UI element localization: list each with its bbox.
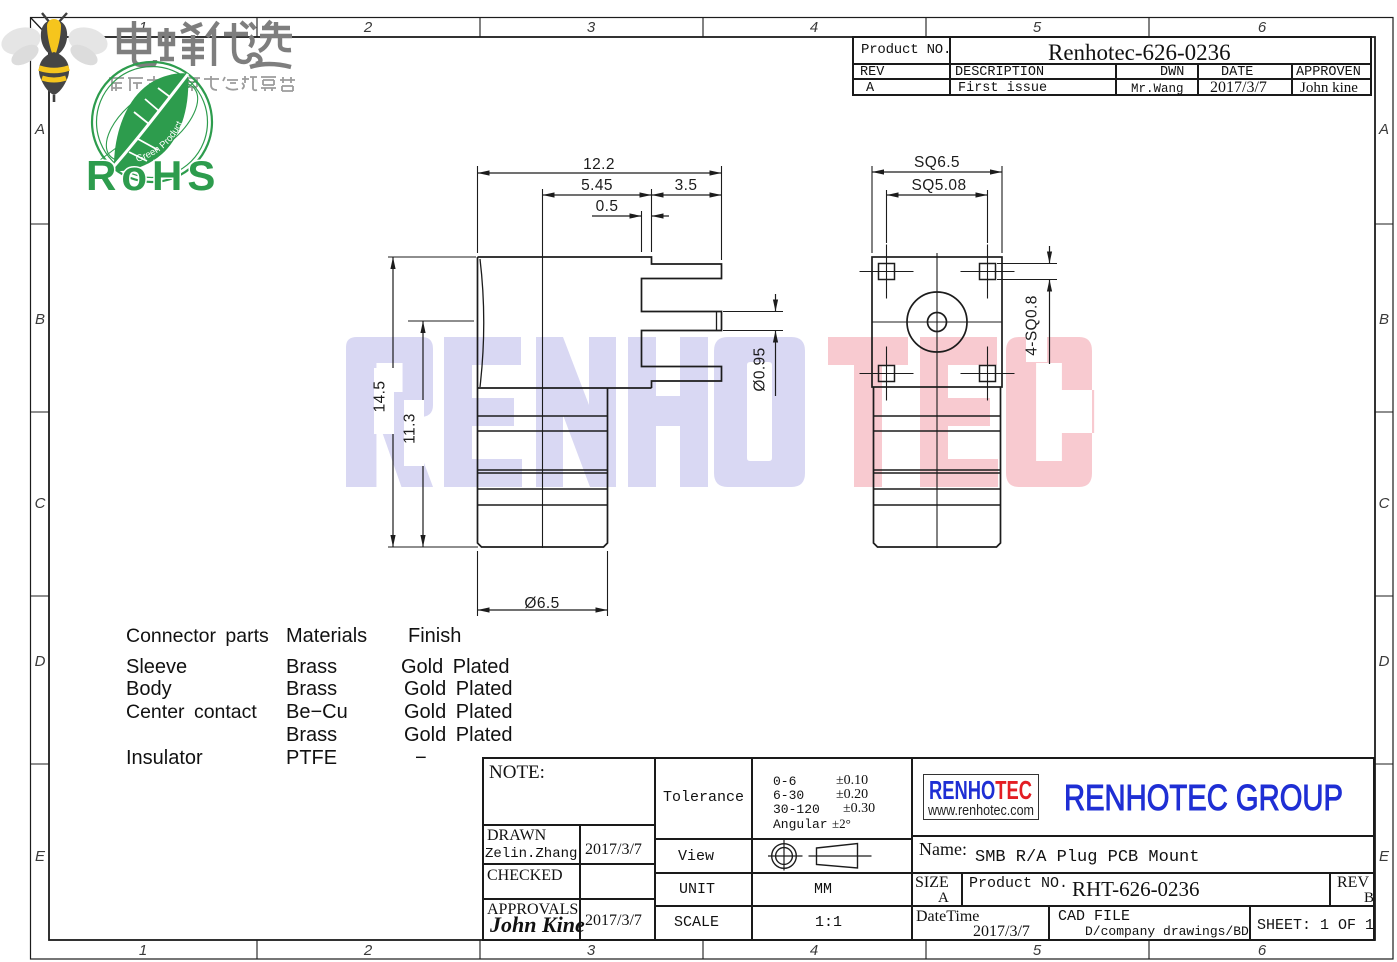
svg-text:RENHOTEC GROUP: RENHOTEC GROUP bbox=[1064, 777, 1343, 818]
svg-text:RENHOTEC: RENHOTEC bbox=[929, 775, 1032, 805]
svg-text:www.renhotec.com: www.renhotec.com bbox=[927, 803, 1034, 819]
